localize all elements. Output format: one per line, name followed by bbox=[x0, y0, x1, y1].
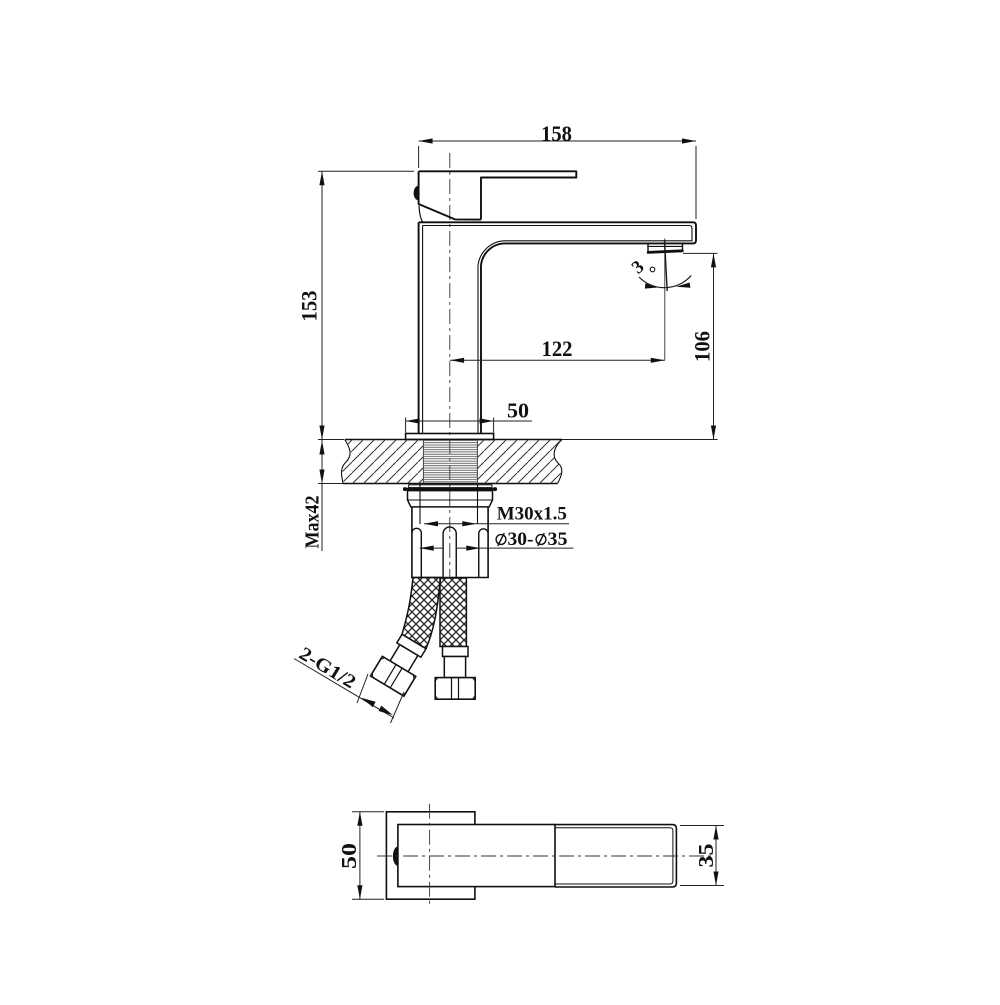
svg-text:122: 122 bbox=[542, 336, 573, 361]
svg-text:M30x1.5: M30x1.5 bbox=[497, 505, 567, 525]
svg-text:30-: 30- bbox=[508, 530, 534, 550]
svg-text:50: 50 bbox=[337, 843, 361, 869]
svg-text:158: 158 bbox=[541, 121, 572, 146]
svg-text:35: 35 bbox=[548, 530, 568, 550]
svg-text:Max42: Max42 bbox=[302, 496, 324, 549]
svg-text:106: 106 bbox=[690, 331, 715, 362]
svg-text:153: 153 bbox=[297, 291, 322, 322]
svg-text:35: 35 bbox=[694, 844, 718, 868]
svg-text:50: 50 bbox=[507, 399, 529, 423]
svg-text:3: 3 bbox=[628, 257, 648, 278]
svg-text:2-G1/2: 2-G1/2 bbox=[295, 643, 359, 693]
